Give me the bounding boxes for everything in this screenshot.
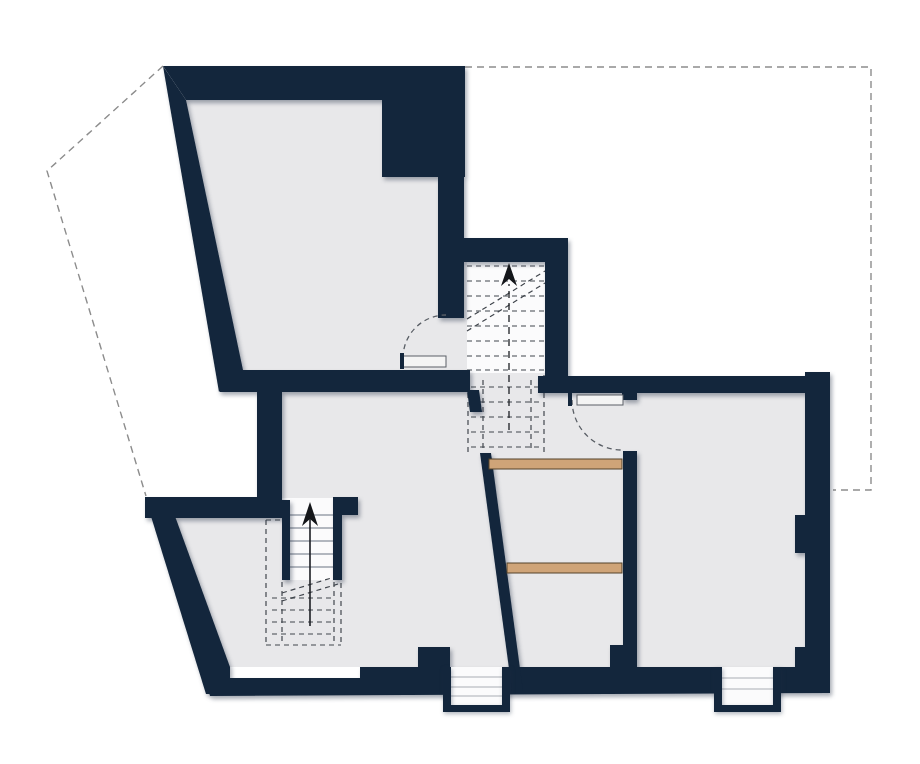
wall-partition-foot: [610, 645, 637, 668]
wall-entry-pier: [418, 647, 450, 668]
floorplan-svg: [0, 0, 920, 764]
entry-steps-right-white: [722, 667, 773, 705]
door-main-room-leaf: [577, 395, 623, 405]
wall-west-mid: [257, 392, 282, 518]
wall-east-pier: [795, 515, 805, 553]
closet-shelf-upper: [489, 459, 622, 469]
wall-stair-stub: [333, 497, 358, 515]
floorplan-canvas: [0, 0, 920, 764]
wall-east: [805, 372, 830, 693]
roof-outline-left: [47, 66, 163, 496]
closet-shelf-lower: [507, 563, 622, 573]
door-main-room-hinge-tick: [568, 390, 572, 406]
door-room-a-hinge-tick: [400, 353, 404, 369]
wall-partition: [623, 451, 637, 668]
wall-door-jamb: [622, 388, 637, 400]
entry-steps-center-frame-bottom: [443, 705, 510, 712]
wall-shaft-west: [438, 177, 464, 318]
entry-steps-right-frame-bottom: [714, 705, 781, 712]
wall-shaft-east: [545, 240, 568, 377]
wall-main-south: [538, 376, 830, 393]
entry-steps-center-white: [451, 667, 502, 705]
wall-stair-east: [333, 515, 342, 580]
wall-stair-west: [282, 500, 290, 580]
door-room-a-leaf: [403, 356, 446, 367]
wall-room-a-south: [220, 370, 470, 392]
wall-ne-block: [382, 66, 465, 177]
